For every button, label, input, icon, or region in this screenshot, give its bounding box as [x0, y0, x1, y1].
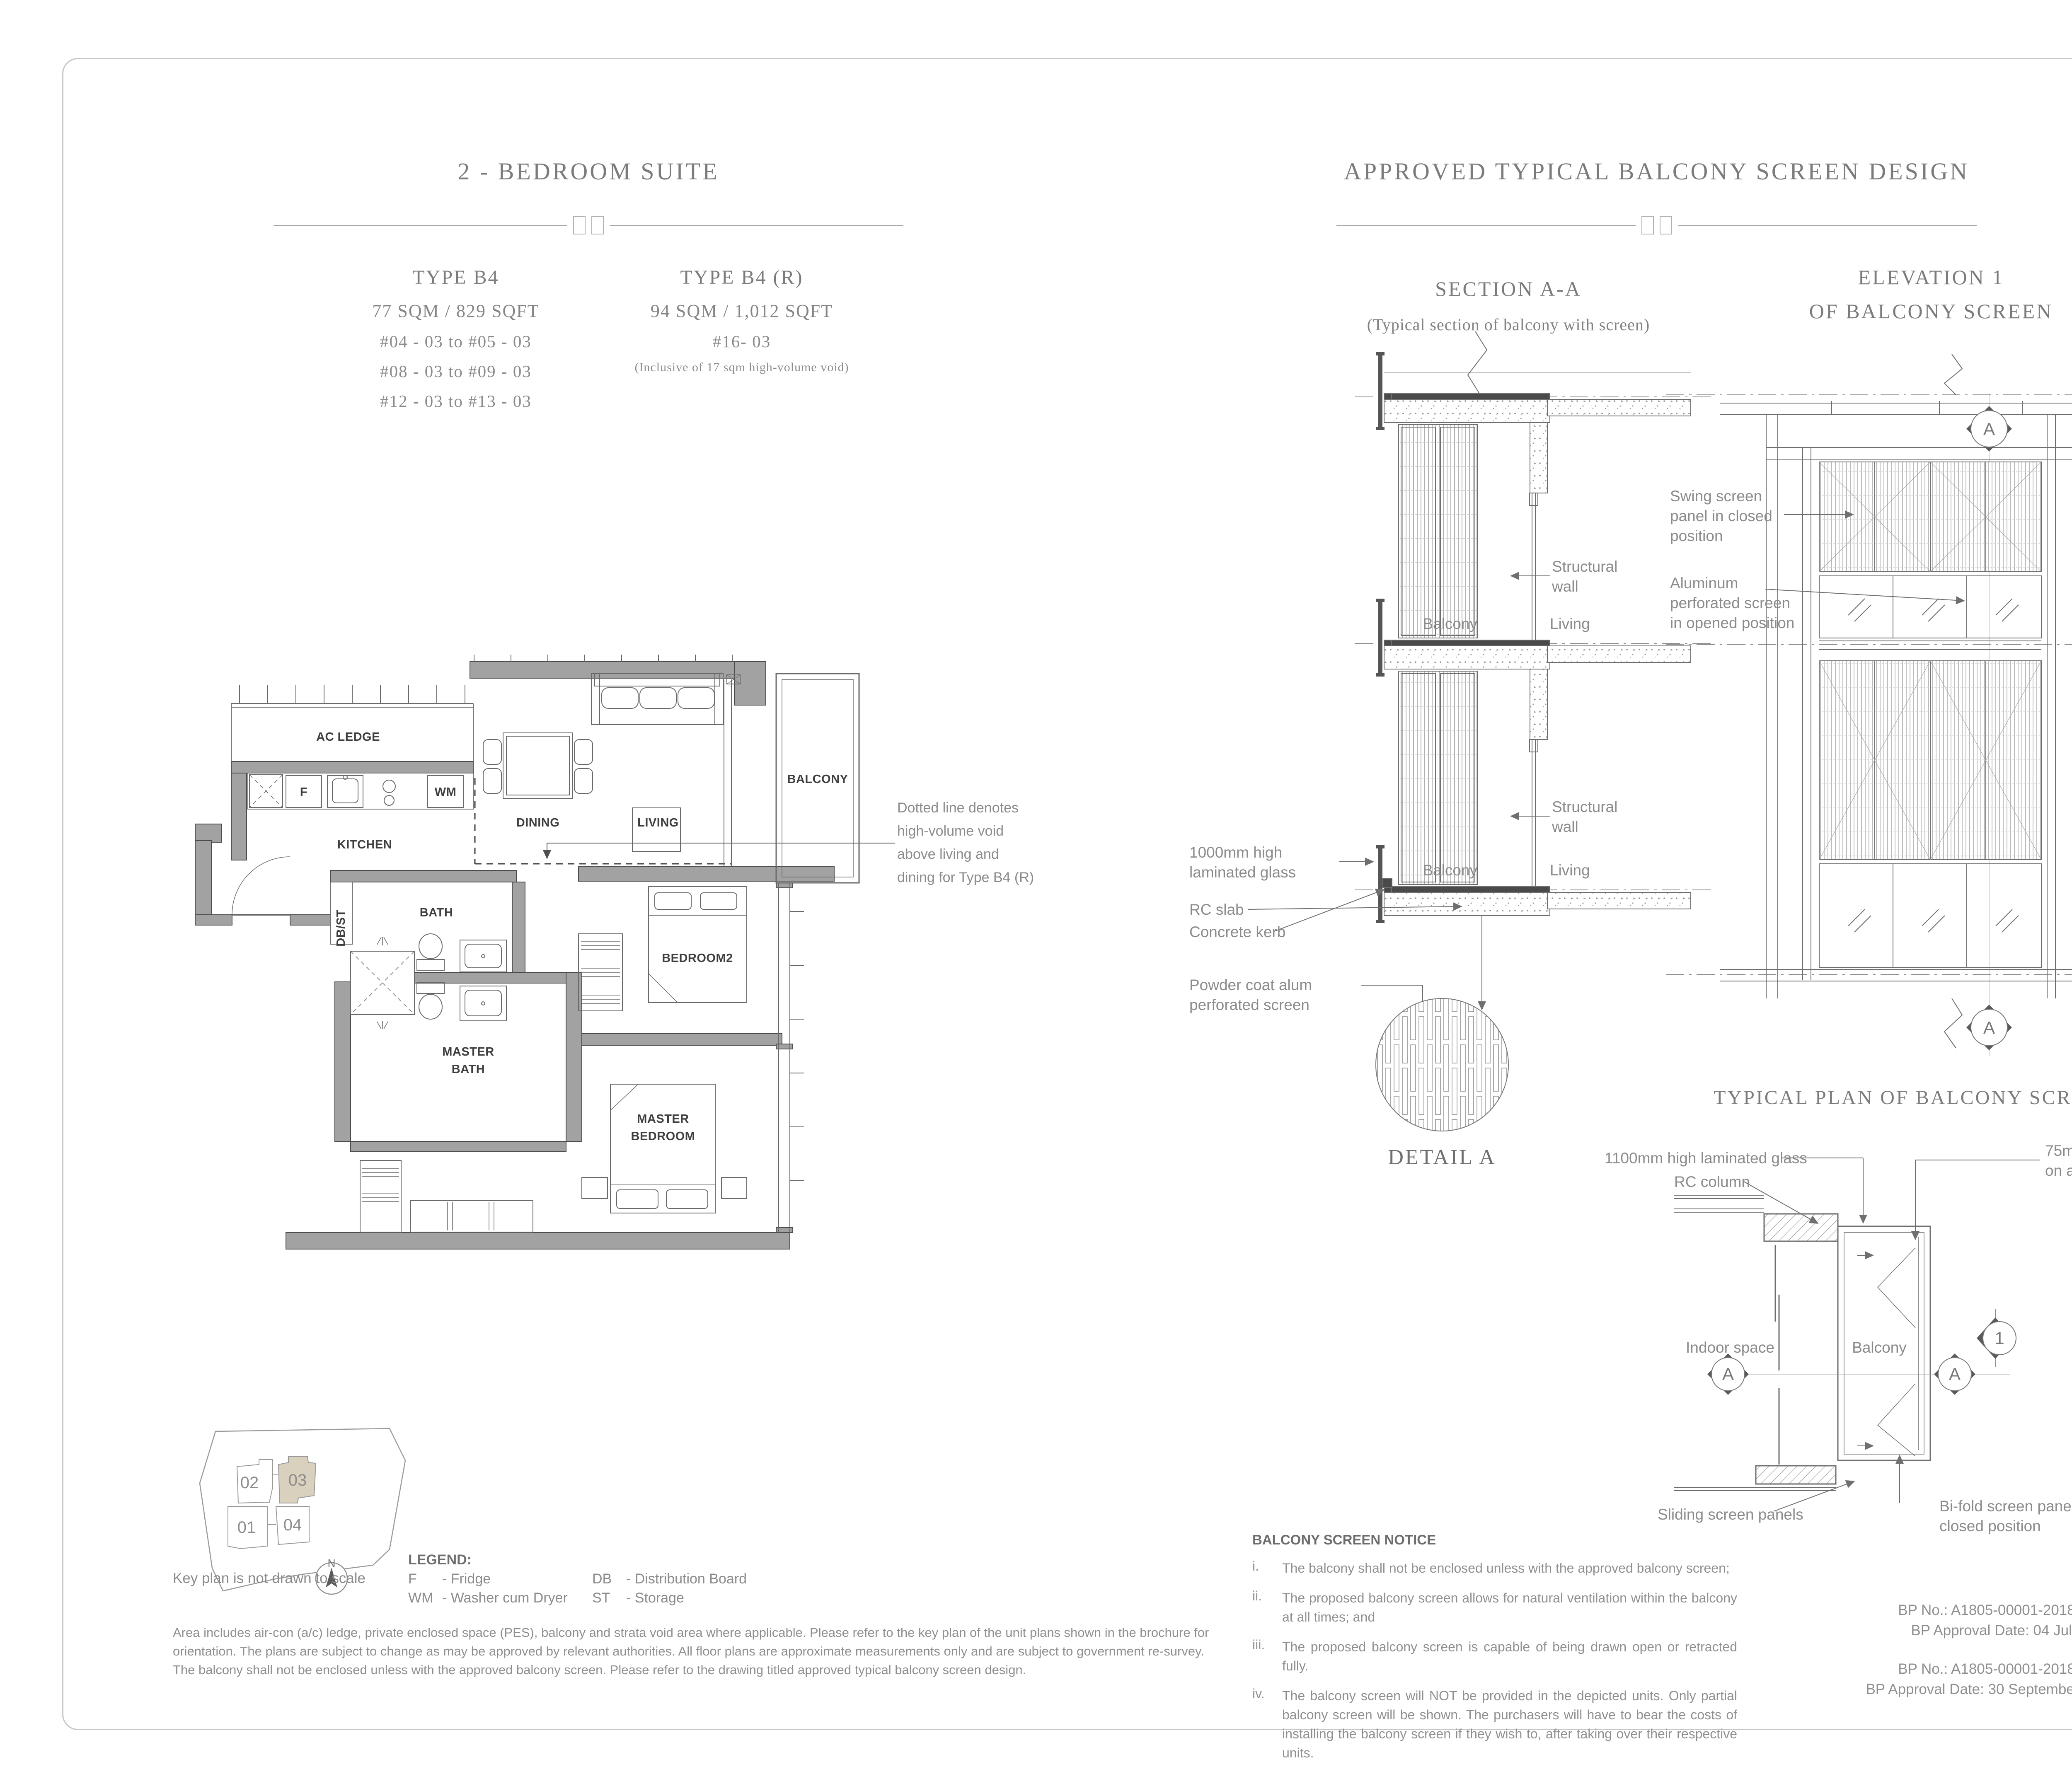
label-sliding-panels: Sliding screen panels — [1658, 1506, 1803, 1523]
label-balcony: Balcony — [1852, 1339, 1907, 1356]
notice-item-text: The proposed balcony screen allows for n… — [1282, 1588, 1737, 1626]
label-laminated-glass: laminated glass — [1189, 864, 1296, 881]
shower-head-icon — [377, 1021, 388, 1029]
type-b4r-block: TYPE B4 (R) 94 SQM / 1,012 SQFT #16- 03 … — [601, 266, 883, 375]
kerb-block — [1383, 878, 1392, 887]
type-b4r-unit: #16- 03 — [601, 331, 883, 351]
detail-a-title: DETAIL A — [1388, 1146, 1496, 1169]
unit-label-01: 01 — [237, 1518, 256, 1537]
divider-right — [1336, 216, 1977, 234]
page-title-right: APPROVED TYPICAL BALCONY SCREEN DESIGN — [1336, 157, 1977, 185]
living-wall-ticks — [474, 655, 732, 662]
key-plan: 02 03 01 04 N — [174, 1425, 497, 1657]
notice-item-text: The proposed balcony screen is capable o… — [1282, 1637, 1737, 1675]
bp-approvals: BP No.: A1805-00001-2018-BP01 BP Approva… — [1743, 1600, 2072, 1699]
type-b4-area: 77 SQM / 829 SQFT — [319, 300, 593, 321]
page-title-left: 2 - BEDROOM SUITE — [274, 157, 903, 185]
divider-square — [1660, 216, 1672, 234]
room-label-bedroom2: BEDROOM2 — [662, 952, 733, 965]
void-annotation: Dotted line denotes high-volume void abo… — [897, 796, 1034, 889]
bifold-panel — [1878, 1384, 1915, 1456]
disclaimer: Area includes air-con (a/c) ledge, priva… — [173, 1623, 1209, 1679]
notice-item: ii. The proposed balcony screen allows f… — [1252, 1588, 1737, 1626]
type-b4-units: #12 - 03 to #13 - 03 — [319, 391, 593, 411]
label-balcony: Balcony — [1423, 862, 1477, 879]
svg-text:A: A — [1722, 1364, 1734, 1384]
rc-wall-bottom — [1756, 1466, 1836, 1484]
unit-label-02: 02 — [240, 1474, 259, 1492]
label-structural-wall: Structural — [1552, 798, 1617, 815]
divider-line — [1336, 225, 1636, 226]
room-label-master-bedroom: MASTER — [637, 1112, 689, 1126]
detail-a-circle — [1376, 998, 1508, 1131]
type-b4-units: #04 - 03 to #05 - 03 — [319, 331, 593, 351]
label-alum-screen: perforated screen — [1670, 595, 1790, 611]
room-label-living: LIVING — [637, 816, 679, 829]
break-symbol — [1944, 998, 1962, 1048]
section-title: SECTION A-A — [1339, 277, 1678, 301]
legend-abbr: DB — [592, 1569, 626, 1588]
shower-head-icon — [377, 937, 388, 945]
divider-square — [573, 216, 586, 234]
label-rc-slab: RC slab — [1189, 901, 1244, 918]
bp-number: BP No.: A1805-00001-2018-BP02 — [1743, 1659, 2072, 1679]
balcony-screen-notice: BALCONY SCREEN NOTICE i. The balcony sha… — [1252, 1532, 1737, 1773]
notice-item-text: The balcony screen will NOT be provided … — [1282, 1686, 1737, 1762]
bp-approval-date: BP Approval Date: 30 September 2019 — [1743, 1679, 2072, 1699]
notice-item: iii. The proposed balcony screen is capa… — [1252, 1637, 1737, 1675]
divider-square — [591, 216, 604, 234]
legend-term: - Storage — [626, 1588, 752, 1607]
divider-line — [274, 225, 567, 226]
label-living: Living — [1550, 862, 1590, 879]
elevation-subtitle: OF BALCONY SCREEN — [1761, 299, 2072, 323]
room-label-master-bath: BATH — [452, 1063, 485, 1076]
appliance-label-fridge: F — [300, 785, 307, 799]
svg-text:1: 1 — [1995, 1328, 2004, 1348]
bp-approval-date: BP Approval Date: 04 July 2019 — [1743, 1620, 2072, 1641]
label-powder-coat: Powder coat alum — [1189, 976, 1312, 993]
typical-plan-drawing: A A 1 1100mm high laminated glass RC col… — [1591, 1119, 2072, 1558]
label-structural-wall: wall — [1552, 818, 1578, 835]
void-annotation-line: above living and — [897, 843, 1034, 866]
elevation-linework — [1666, 354, 2072, 1056]
divider-line — [1678, 225, 1977, 226]
label-bifold-panels: Bi-fold screen panels — [1939, 1498, 2072, 1515]
void-annotation-line: Dotted line denotes — [897, 796, 1034, 819]
section-marker-a: A — [1934, 1353, 1975, 1395]
floor-plan: AC LEDGE KITCHEN DINING LIVING BALCONY B… — [182, 655, 895, 1284]
type-b4r-area: 94 SQM / 1,012 SQFT — [601, 300, 883, 321]
svg-text:A: A — [1983, 419, 1995, 439]
section-marker-a: A — [1707, 1353, 1749, 1395]
label-concrete-kerb: Concrete kerb — [1189, 923, 1285, 940]
bp-gap — [1743, 1641, 2072, 1659]
room-label-master-bath: MASTER — [442, 1045, 494, 1059]
divider-square — [1641, 216, 1654, 234]
elevation-title: ELEVATION 1 — [1761, 265, 2072, 289]
section-marker-a: A — [1966, 1005, 2012, 1050]
svg-text:A: A — [1949, 1364, 1961, 1384]
section-marker-a: A — [1966, 406, 2012, 452]
notice-item-number: ii. — [1252, 1588, 1282, 1626]
legend-title: LEGEND: — [408, 1550, 752, 1569]
room-label-dbst: DB/ST — [334, 909, 348, 947]
disclaimer-line: The balcony shall not be enclosed unless… — [173, 1660, 1209, 1679]
label-indoor-space: Indoor space — [1686, 1339, 1774, 1356]
section-a-a-drawing: Structural wall Structural wall Balcony … — [1177, 323, 1716, 1206]
plan-walls — [195, 662, 834, 1249]
divider-line — [610, 225, 903, 226]
notice-item: iv. The balcony screen will NOT be provi… — [1252, 1686, 1737, 1762]
legend-abbr: WM — [408, 1588, 442, 1607]
void-annotation-line: high-volume void — [897, 819, 1034, 843]
legend-term: - Fridge — [442, 1569, 592, 1588]
room-label-bath: BATH — [420, 906, 453, 919]
label-swing-screen: position — [1670, 527, 1723, 544]
screen-band — [1819, 661, 2041, 860]
label-bifold-panels: closed position — [1939, 1518, 2041, 1535]
label-1100-glass: 1100mm high laminated glass — [1605, 1150, 1807, 1167]
label-swing-screen: Swing screen — [1670, 488, 1762, 505]
notice-item-number: i. — [1252, 1559, 1282, 1578]
label-structural-wall: wall — [1552, 578, 1578, 595]
notice-item-text: The balcony shall not be enclosed unless… — [1282, 1559, 1737, 1578]
bifold-panel — [1878, 1248, 1915, 1328]
label-alum-screen: in opened position — [1670, 614, 1794, 631]
brochure-page: 2 - BEDROOM SUITE TYPE B4 77 SQM / 829 S… — [0, 0, 2072, 1786]
notice-item-number: iii. — [1252, 1637, 1282, 1675]
void-annotation-line: dining for Type B4 (R) — [897, 866, 1034, 889]
laminated-glass-posts — [1376, 352, 1385, 923]
type-b4-block: TYPE B4 77 SQM / 829 SQFT #04 - 03 to #0… — [319, 266, 593, 411]
legend-abbr: F — [408, 1569, 442, 1588]
room-label-balcony: BALCONY — [787, 773, 848, 786]
svg-text:A: A — [1983, 1018, 1995, 1037]
legend: LEGEND: F - Fridge DB - Distribution Boa… — [408, 1550, 752, 1607]
bp-number: BP No.: A1805-00001-2018-BP01 — [1743, 1600, 2072, 1620]
label-laminated-glass: 1000mm high — [1189, 844, 1282, 861]
label-rc-column: RC column — [1674, 1173, 1750, 1190]
label-structural-wall: Structural — [1552, 558, 1617, 575]
type-b4r-heading: TYPE B4 (R) — [601, 266, 883, 289]
label-kerb: on alum clad finish — [2045, 1162, 2072, 1179]
legend-abbr: ST — [592, 1588, 626, 1607]
label-living: Living — [1550, 615, 1590, 632]
keyplan-caption: Key plan is not drawn to scale — [173, 1570, 366, 1587]
svg-text:N: N — [328, 1557, 336, 1569]
unit-label-04: 04 — [283, 1516, 302, 1534]
room-label-dining: DINING — [516, 816, 560, 829]
disclaimer-line: Area includes air-con (a/c) ledge, priva… — [173, 1623, 1209, 1642]
room-label-kitchen: KITCHEN — [337, 838, 392, 851]
divider-left — [274, 216, 903, 234]
legend-table: F - Fridge DB - Distribution Board WM - … — [408, 1569, 752, 1607]
appliance-label-wm: WM — [435, 785, 457, 799]
disclaimer-line: orientation. The plans are subject to ch… — [173, 1642, 1209, 1660]
label-alum-screen: Aluminum — [1670, 575, 1738, 592]
notice-title: BALCONY SCREEN NOTICE — [1252, 1532, 1737, 1548]
elevation-drawing: A A Swing screen panel in closed positio… — [1666, 352, 2072, 1139]
parapet-ticks — [240, 685, 465, 703]
break-symbol — [1944, 354, 1962, 395]
legend-term: - Washer cum Dryer — [442, 1588, 592, 1607]
glass-band — [1819, 864, 2041, 967]
unit-label-03: 03 — [288, 1471, 307, 1489]
legend-term: - Distribution Board — [626, 1569, 752, 1588]
label-swing-screen: panel in closed — [1670, 508, 1772, 524]
label-kerb: 75mm high concrete kerb — [2045, 1142, 2072, 1159]
rc-column-wall — [1764, 1214, 1838, 1241]
notice-item: i. The balcony shall not be enclosed unl… — [1252, 1559, 1737, 1578]
elevation-labels: Swing screen panel in closed position Al… — [1670, 488, 1794, 631]
room-label-ac-ledge: AC LEDGE — [316, 730, 380, 744]
glass-band — [1819, 576, 2041, 638]
type-b4-heading: TYPE B4 — [319, 266, 593, 289]
room-label-master-bedroom: BEDROOM — [631, 1130, 695, 1143]
screen-band — [1819, 462, 2041, 572]
type-b4r-note: (Inclusive of 17 sqm high-volume void) — [601, 360, 883, 375]
notice-item-number: iv. — [1252, 1686, 1282, 1762]
elevation-marker-1: 1 — [1977, 1317, 2016, 1359]
label-balcony: Balcony — [1423, 615, 1477, 632]
section-linework — [1248, 331, 1716, 1131]
type-b4-units: #08 - 03 to #09 - 03 — [319, 361, 593, 381]
label-powder-coat: perforated screen — [1189, 996, 1310, 1013]
